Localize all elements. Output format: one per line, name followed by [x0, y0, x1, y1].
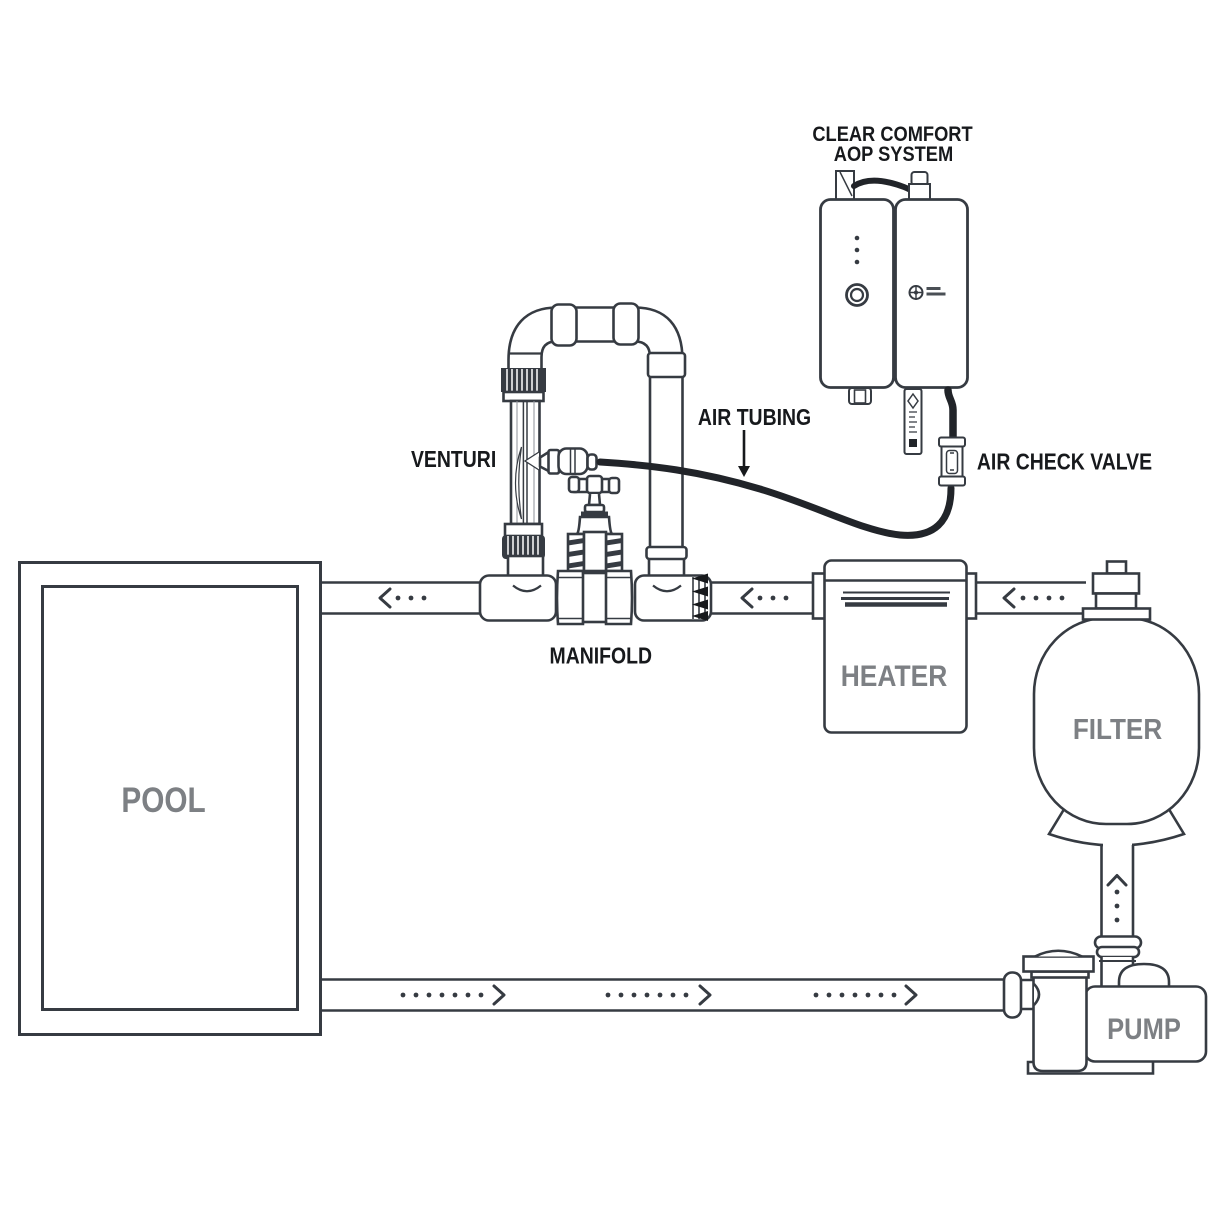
- svg-text:HEATER: HEATER: [841, 658, 948, 692]
- svg-text:POOL: POOL: [121, 781, 205, 820]
- svg-text:AIR CHECK VALVE: AIR CHECK VALVE: [977, 449, 1152, 475]
- svg-text:VENTURI: VENTURI: [411, 446, 496, 472]
- svg-text:FILTER: FILTER: [1073, 713, 1162, 746]
- svg-text:MANIFOLD: MANIFOLD: [550, 643, 653, 669]
- svg-text:PUMP: PUMP: [1107, 1012, 1181, 1045]
- svg-text:AIR TUBING: AIR TUBING: [698, 404, 811, 430]
- svg-text:AOP SYSTEM: AOP SYSTEM: [834, 143, 953, 167]
